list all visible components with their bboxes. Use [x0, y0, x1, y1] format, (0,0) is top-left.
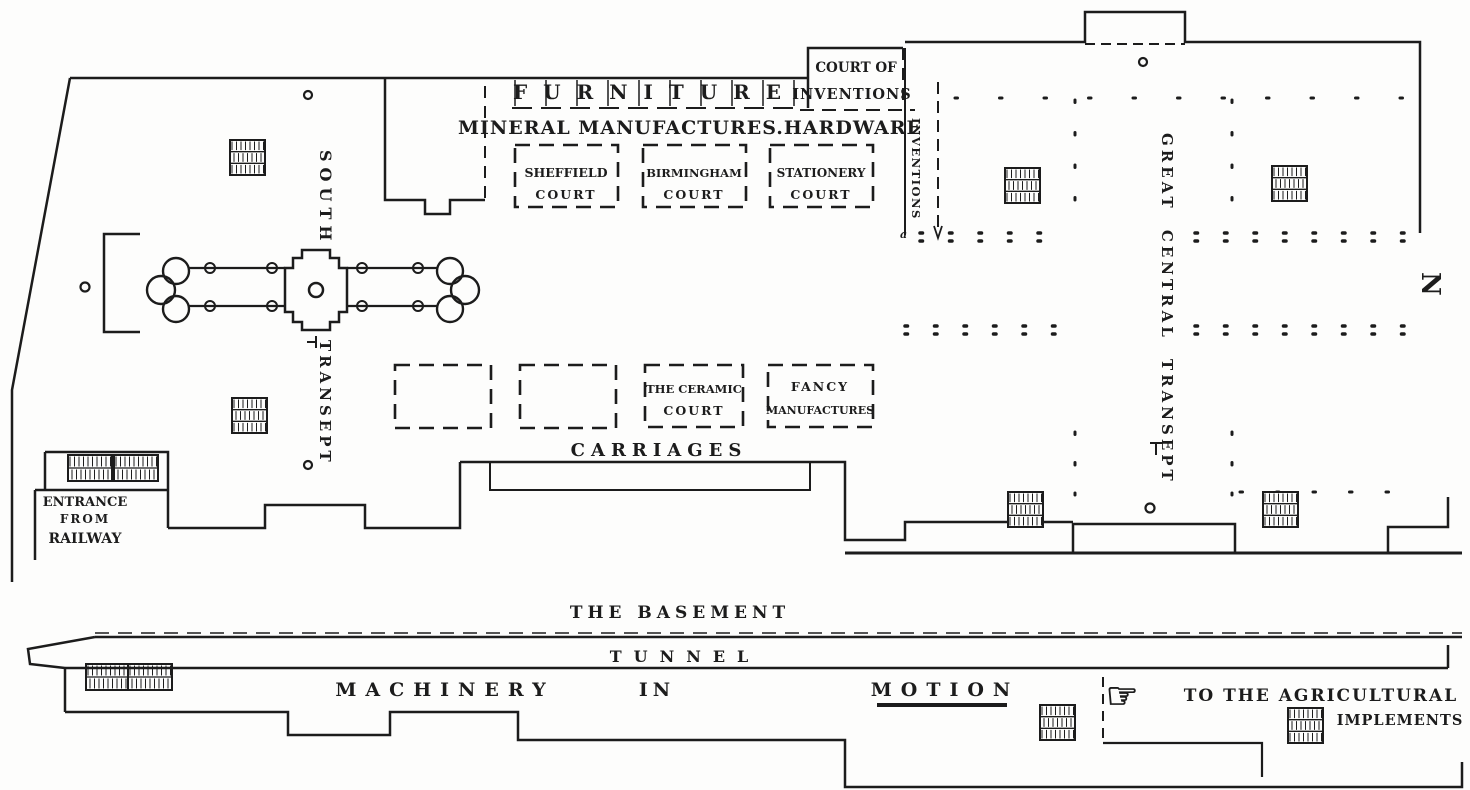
tunnel-label: TUNNEL [610, 647, 761, 666]
ceramic-court-label2: COURT [663, 403, 724, 418]
entrance-label-line1: ENTRANCE [43, 495, 128, 510]
machinery-label: MACHINERY [335, 679, 554, 701]
stairs-icon [68, 455, 112, 481]
sheffield-court-label2: COURT [535, 187, 596, 202]
stationery-court-label: STATIONERY [777, 166, 866, 180]
floor-plan-svg: FURNITURE MINERAL MANUFACTURES.HARDWARE … [0, 0, 1470, 790]
birmingham-court-label: BIRMINGHAM [646, 166, 742, 180]
furniture-label: FURNITURE [513, 80, 797, 104]
north-compass-label: N [1415, 272, 1445, 296]
south-transept-label-transept: TRANSEPT [316, 340, 334, 466]
floor-plan-page: FURNITURE MINERAL MANUFACTURES.HARDWARE … [0, 0, 1470, 790]
pointing-hand-icon: ☞ [1106, 675, 1138, 717]
fancy-manufactures-outline [768, 365, 873, 427]
the-basement-label: THE BASEMENT [570, 603, 790, 623]
stairs-icon [1272, 166, 1307, 201]
birmingham-court-label2: COURT [663, 187, 724, 202]
stairs-icon [1288, 708, 1323, 743]
stairs-icon [1040, 705, 1075, 740]
empty-court-outline-1 [395, 365, 491, 428]
fountain-nodes [205, 263, 423, 311]
court-of-inventions-label-line2: INVENTIONS [792, 86, 912, 103]
mineral-hardware-label: MINERAL MANUFACTURES.HARDWARE [458, 117, 922, 139]
court-of-inventions-label-line1: COURT OF [815, 60, 897, 76]
left-apse-bracket [104, 234, 140, 332]
stairs-icon [230, 140, 265, 175]
fancy-manufactures-label2: MANUFACTURES [766, 404, 874, 417]
stairs-icon [232, 398, 267, 433]
south-transept-label-south: SOUTH [316, 150, 335, 246]
to-the-agricultural-label: TO THE AGRICULTURAL [1184, 686, 1458, 706]
stairs-icon [1263, 492, 1298, 527]
fancy-manufactures-label: FANCY [791, 379, 849, 394]
ceramic-court-label: THE CERAMIC [646, 382, 742, 396]
motion-label: MOTION [871, 679, 1020, 701]
implements-label: IMPLEMENTS [1337, 712, 1464, 729]
sheffield-court-label: SHEFFIELD [524, 165, 607, 180]
stairs-icon [1008, 492, 1043, 527]
great-central-transept-label: GREAT CENTRAL TRANSEPT [1158, 133, 1176, 485]
stationery-court-label2: COURT [790, 187, 851, 202]
stairs-icon [114, 455, 158, 481]
empty-court-outline-2 [520, 365, 616, 428]
stairs-icon [1005, 168, 1040, 203]
reference-mark-a: a [900, 228, 907, 241]
inventions-vertical-label: INVENTIONS [909, 118, 923, 220]
entrance-label-line2: FROM [60, 512, 110, 526]
machinery-in-label: IN [639, 679, 675, 701]
carriages-label: CARRIAGES [571, 440, 748, 461]
entrance-label-line3: RAILWAY [49, 531, 123, 547]
